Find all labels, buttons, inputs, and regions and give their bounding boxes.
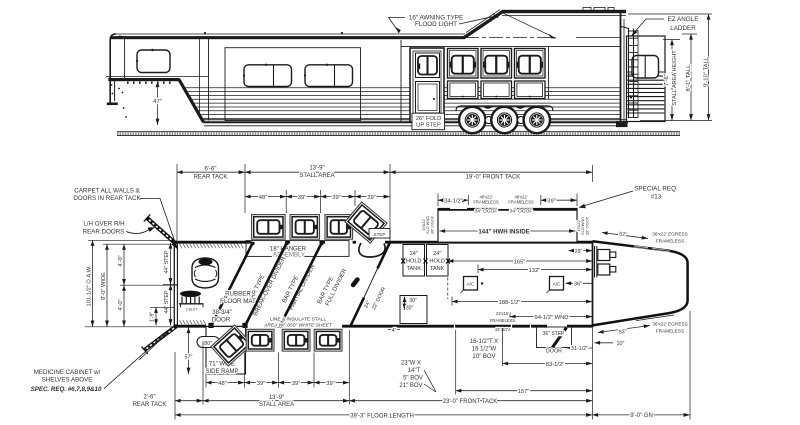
svg-text:144" HWH INSIDE: 144" HWH INSIDE	[478, 229, 529, 236]
svg-text:23'-0" FRONT TACK: 23'-0" FRONT TACK	[443, 399, 498, 405]
svg-text:FRAMELESS: FRAMELESS	[490, 318, 516, 323]
svg-text:SIDE RAMP: SIDE RAMP	[205, 369, 238, 375]
svg-text:STEP: STEP	[374, 232, 386, 237]
svg-text:SPECIAL REQ.: SPECIAL REQ.	[634, 186, 678, 193]
svg-text:19'-0" FRONT TACK: 19'-0" FRONT TACK	[466, 174, 521, 180]
svg-text:39": 39"	[292, 381, 301, 387]
svg-text:DOORS IN REAR TACK: DOORS IN REAR TACK	[73, 195, 141, 202]
svg-text:FRAMELESS: FRAMELESS	[656, 239, 684, 244]
svg-text:UP STEP: UP STEP	[416, 123, 441, 129]
svg-text:REAR TACK: REAR TACK	[194, 174, 228, 180]
svg-text:39": 39"	[298, 195, 307, 201]
svg-text:132": 132"	[529, 268, 541, 274]
svg-text:36'x22' EGRESS: 36'x22' EGRESS	[652, 322, 687, 327]
svg-text:13'-9": 13'-9"	[309, 166, 324, 172]
svg-text:39": 39"	[257, 381, 266, 387]
svg-text:23"W X: 23"W X	[401, 360, 421, 366]
svg-text:DOOR: DOOR	[212, 316, 231, 323]
svg-text:14"T: 14"T	[408, 368, 421, 374]
svg-text:LINE & INSULATE STALL: LINE & INSULATE STALL	[270, 317, 327, 323]
svg-text:101-1/2" O.A.W.: 101-1/2" O.A.W.	[86, 265, 92, 306]
svg-text:SHELVES ABOVE: SHELVES ABOVE	[42, 376, 93, 383]
svg-text:188-1/2": 188-1/2"	[499, 300, 521, 306]
svg-text:48": 48"	[259, 195, 268, 201]
svg-text:22'x15': 22'x15'	[496, 311, 509, 316]
svg-text:LADDER: LADDER	[670, 25, 696, 32]
svg-text:26" FOLD: 26" FOLD	[416, 116, 442, 122]
svg-text:30": 30"	[409, 298, 417, 304]
svg-text:2 BLKT: 2 BLKT	[186, 308, 197, 312]
svg-text:STALL AREA: STALL AREA	[259, 402, 294, 408]
svg-text:9'-0" GN: 9'-0" GN	[630, 413, 653, 419]
svg-text:34" OGOF: 34" OGOF	[510, 209, 533, 215]
svg-text:21" BOV: 21" BOV	[399, 383, 422, 389]
svg-text:52": 52"	[619, 231, 628, 238]
svg-text:165": 165"	[514, 259, 526, 265]
svg-text:39": 39"	[332, 195, 341, 201]
svg-text:STALL AREA: STALL AREA	[299, 173, 334, 179]
svg-text:29": 29"	[575, 249, 583, 255]
svg-text:FRAMELESS: FRAMELESS	[656, 329, 684, 334]
svg-text:16 1/2"W: 16 1/2"W	[472, 346, 497, 352]
svg-text:L/H OVER R/H: L/H OVER R/H	[83, 220, 124, 227]
svg-text:38-3/4": 38-3/4"	[212, 309, 232, 316]
svg-text:FRAMELESS: FRAMELESS	[473, 199, 499, 204]
svg-text:13'-9": 13'-9"	[269, 395, 284, 401]
svg-text:10": 10"	[617, 341, 625, 347]
svg-text:HOLD: HOLD	[429, 259, 445, 265]
svg-text:4'-0": 4'-0"	[118, 299, 124, 310]
svg-text:16-1/2"T X: 16-1/2"T X	[470, 339, 498, 345]
svg-text:34" OGOF: 34" OGOF	[475, 209, 498, 215]
svg-text:REAR TACK: REAR TACK	[133, 402, 167, 408]
svg-text:36" STEP: 36" STEP	[543, 331, 565, 337]
svg-text:A/C: A/C	[553, 282, 562, 288]
svg-text:39'-3" FLOOR LENGTH: 39'-3" FLOOR LENGTH	[350, 413, 414, 419]
svg-text:39": 39"	[547, 199, 556, 205]
svg-text:8'-1" TALL: 8'-1" TALL	[686, 64, 692, 92]
svg-text:5" BOV: 5" BOV	[403, 375, 423, 381]
svg-text:AREA W/ .050" WHITE SHEET: AREA W/ .050" WHITE SHEET	[263, 323, 333, 329]
svg-text:10" BOV: 10" BOV	[472, 354, 495, 360]
svg-text:30": 30"	[406, 305, 414, 311]
svg-text:39": 39"	[367, 195, 376, 201]
svg-text:47": 47"	[153, 99, 162, 105]
svg-text:FRAMELESS: FRAMELESS	[508, 199, 534, 204]
svg-text:94-1/2" WND: 94-1/2" WND	[535, 315, 569, 321]
svg-text:SPEC. REQ. #6,7,8,9&10: SPEC. REQ. #6,7,8,9&10	[31, 386, 102, 393]
svg-text:36": 36"	[574, 282, 582, 288]
svg-text:6'-6": 6'-6"	[205, 166, 217, 172]
svg-text:44" STEP: 44" STEP	[164, 250, 170, 274]
svg-text:24": 24"	[433, 251, 441, 257]
svg-text:TANK: TANK	[430, 266, 445, 272]
svg-text:HOLD: HOLD	[406, 259, 422, 265]
svg-text:36'x22' EGRESS: 36'x22' EGRESS	[652, 232, 687, 237]
svg-text:57": 57"	[185, 355, 193, 361]
svg-text:MEDICINE CABINET w/: MEDICINE CABINET w/	[34, 369, 101, 376]
svg-text:39" OGOF: 39" OGOF	[429, 215, 434, 234]
svg-text:52": 52"	[619, 329, 628, 336]
svg-text:8'-0" WIDE: 8'-0" WIDE	[101, 272, 107, 300]
svg-text:44" STEP: 44" STEP	[164, 290, 170, 314]
svg-text:31-1/2": 31-1/2"	[571, 346, 588, 352]
svg-text:FLOOR MAT: FLOOR MAT	[220, 298, 256, 305]
svg-text:39": 39"	[326, 381, 335, 387]
svg-text:A/C: A/C	[467, 282, 476, 288]
svg-text:TANK: TANK	[406, 266, 421, 272]
svg-text:83-1/2": 83-1/2"	[546, 362, 565, 368]
svg-text:48": 48"	[218, 381, 227, 387]
svg-text:4": 4"	[392, 328, 397, 334]
svg-text:DOOR: DOOR	[546, 348, 562, 354]
svg-text:#13: #13	[651, 194, 662, 201]
svg-text:24": 24"	[410, 251, 418, 257]
svg-text:9'-10" TALL: 9'-10" TALL	[703, 56, 709, 87]
svg-text:REAR DOORS: REAR DOORS	[83, 229, 125, 236]
svg-text:2'-6": 2'-6"	[144, 394, 156, 400]
svg-text:39" OGOF: 39" OGOF	[584, 216, 589, 235]
svg-text:CARPET ALL WALLS &: CARPET ALL WALLS &	[74, 187, 140, 194]
svg-text:STALL AREA HEIGHT: STALL AREA HEIGHT	[672, 50, 678, 106]
svg-text:FLOOD LIGHT: FLOOD LIGHT	[415, 21, 457, 28]
svg-text:34-1/2": 34-1/2"	[444, 199, 463, 205]
svg-text:7'-6": 7'-6"	[664, 74, 670, 86]
svg-text:1'-9": 1'-9"	[150, 312, 156, 322]
svg-text:157": 157"	[518, 389, 530, 395]
svg-text:RUBBER: RUBBER	[225, 290, 251, 297]
svg-text:EZ ANGLE: EZ ANGLE	[668, 16, 699, 23]
svg-text:4'-0": 4'-0"	[118, 255, 124, 266]
